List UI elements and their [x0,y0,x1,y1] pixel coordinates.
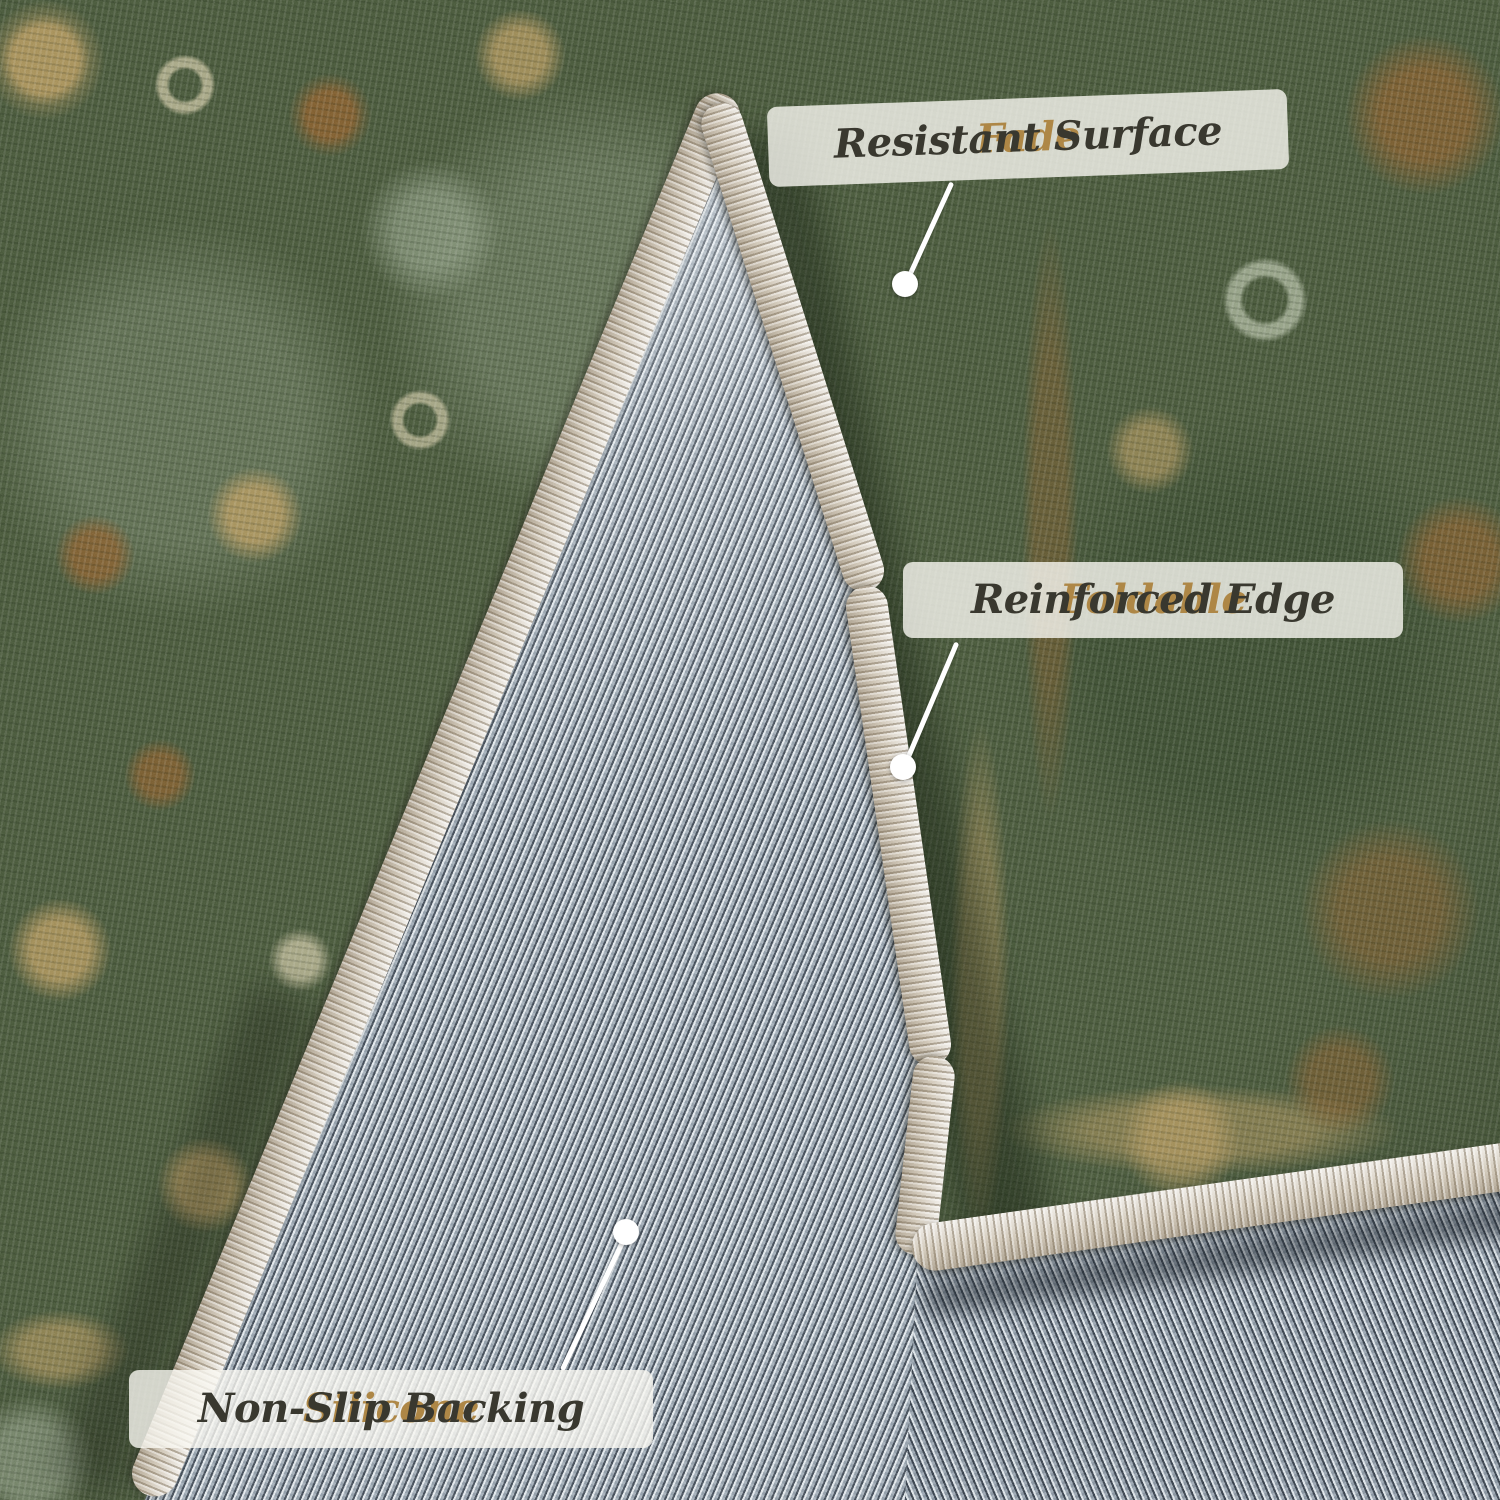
callout-label-text: Non-Slip Backing [198,1389,584,1429]
callout-marker-dot [890,754,916,780]
callout-label-text: Resistant Surface [833,111,1222,165]
callout-foldable-reinforced-edge: Foldable Reinforced Edge [903,562,1403,638]
callout-marker-dot [892,271,918,297]
callout-label-text: Reinforced Edge [971,580,1335,620]
rug-product-photo: Fade Resistant Surface Foldable Reinforc… [0,0,1500,1500]
callout-marker-dot [613,1219,639,1245]
callout-silicone-non-slip-backing: Silicone Non-Slip Backing [129,1370,653,1448]
